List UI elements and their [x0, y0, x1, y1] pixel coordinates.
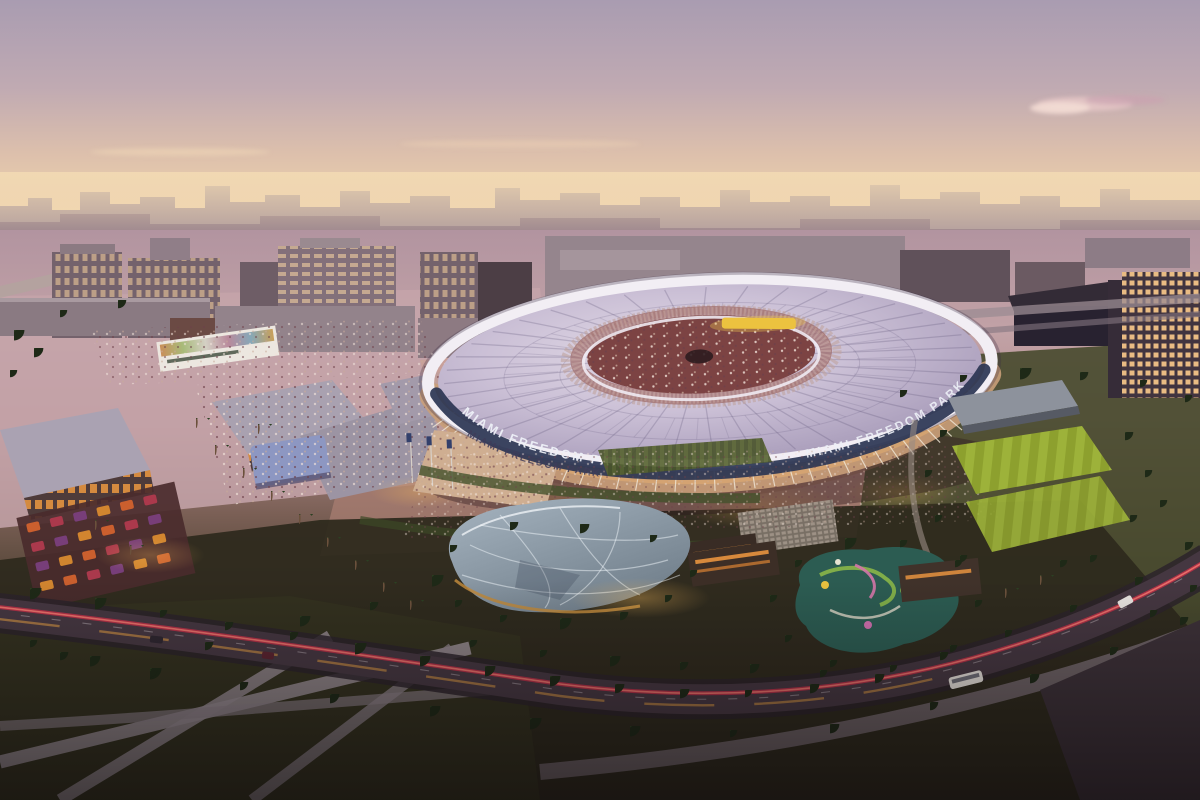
bottom-vignette: [0, 560, 1200, 800]
campus-roofline: [560, 250, 680, 270]
banner-flag: [406, 433, 411, 442]
banner-flag: [447, 439, 452, 448]
cloud: [90, 148, 270, 156]
cloud: [400, 140, 640, 148]
office-block-roof: [300, 238, 360, 248]
lit-tower-sideface: [1108, 280, 1124, 398]
aerial-stadium-rendering: MIAMI FREEDOM PARK MIAMI FREEDOM PARK MI…: [0, 0, 1200, 800]
scoreboard: [722, 318, 796, 330]
office-tower-roof: [60, 244, 115, 254]
cloud: [1030, 102, 1090, 114]
scene-canvas: MIAMI FREEDOM PARK MIAMI FREEDOM PARK MI…: [0, 0, 1200, 800]
cloud: [1085, 95, 1165, 105]
office-tower-top: [150, 238, 190, 260]
lit-office-tower: [1122, 272, 1200, 398]
apartment-row: [1085, 238, 1190, 268]
banner-flag: [426, 436, 431, 445]
